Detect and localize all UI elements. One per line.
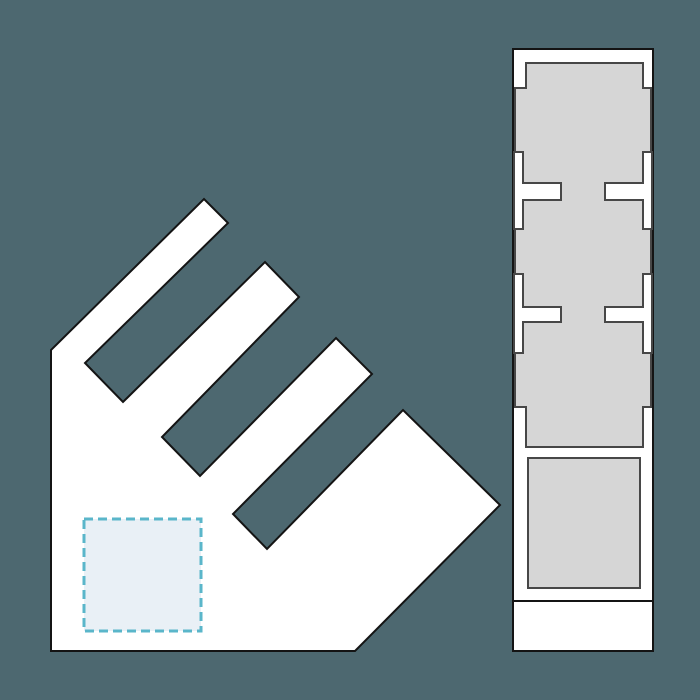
parts-canvas-svg — [0, 0, 700, 700]
gray-strip-part — [515, 63, 651, 447]
gray-square-part — [528, 458, 640, 588]
nesting-layout-canvas — [0, 0, 700, 700]
placement-square — [84, 519, 201, 631]
